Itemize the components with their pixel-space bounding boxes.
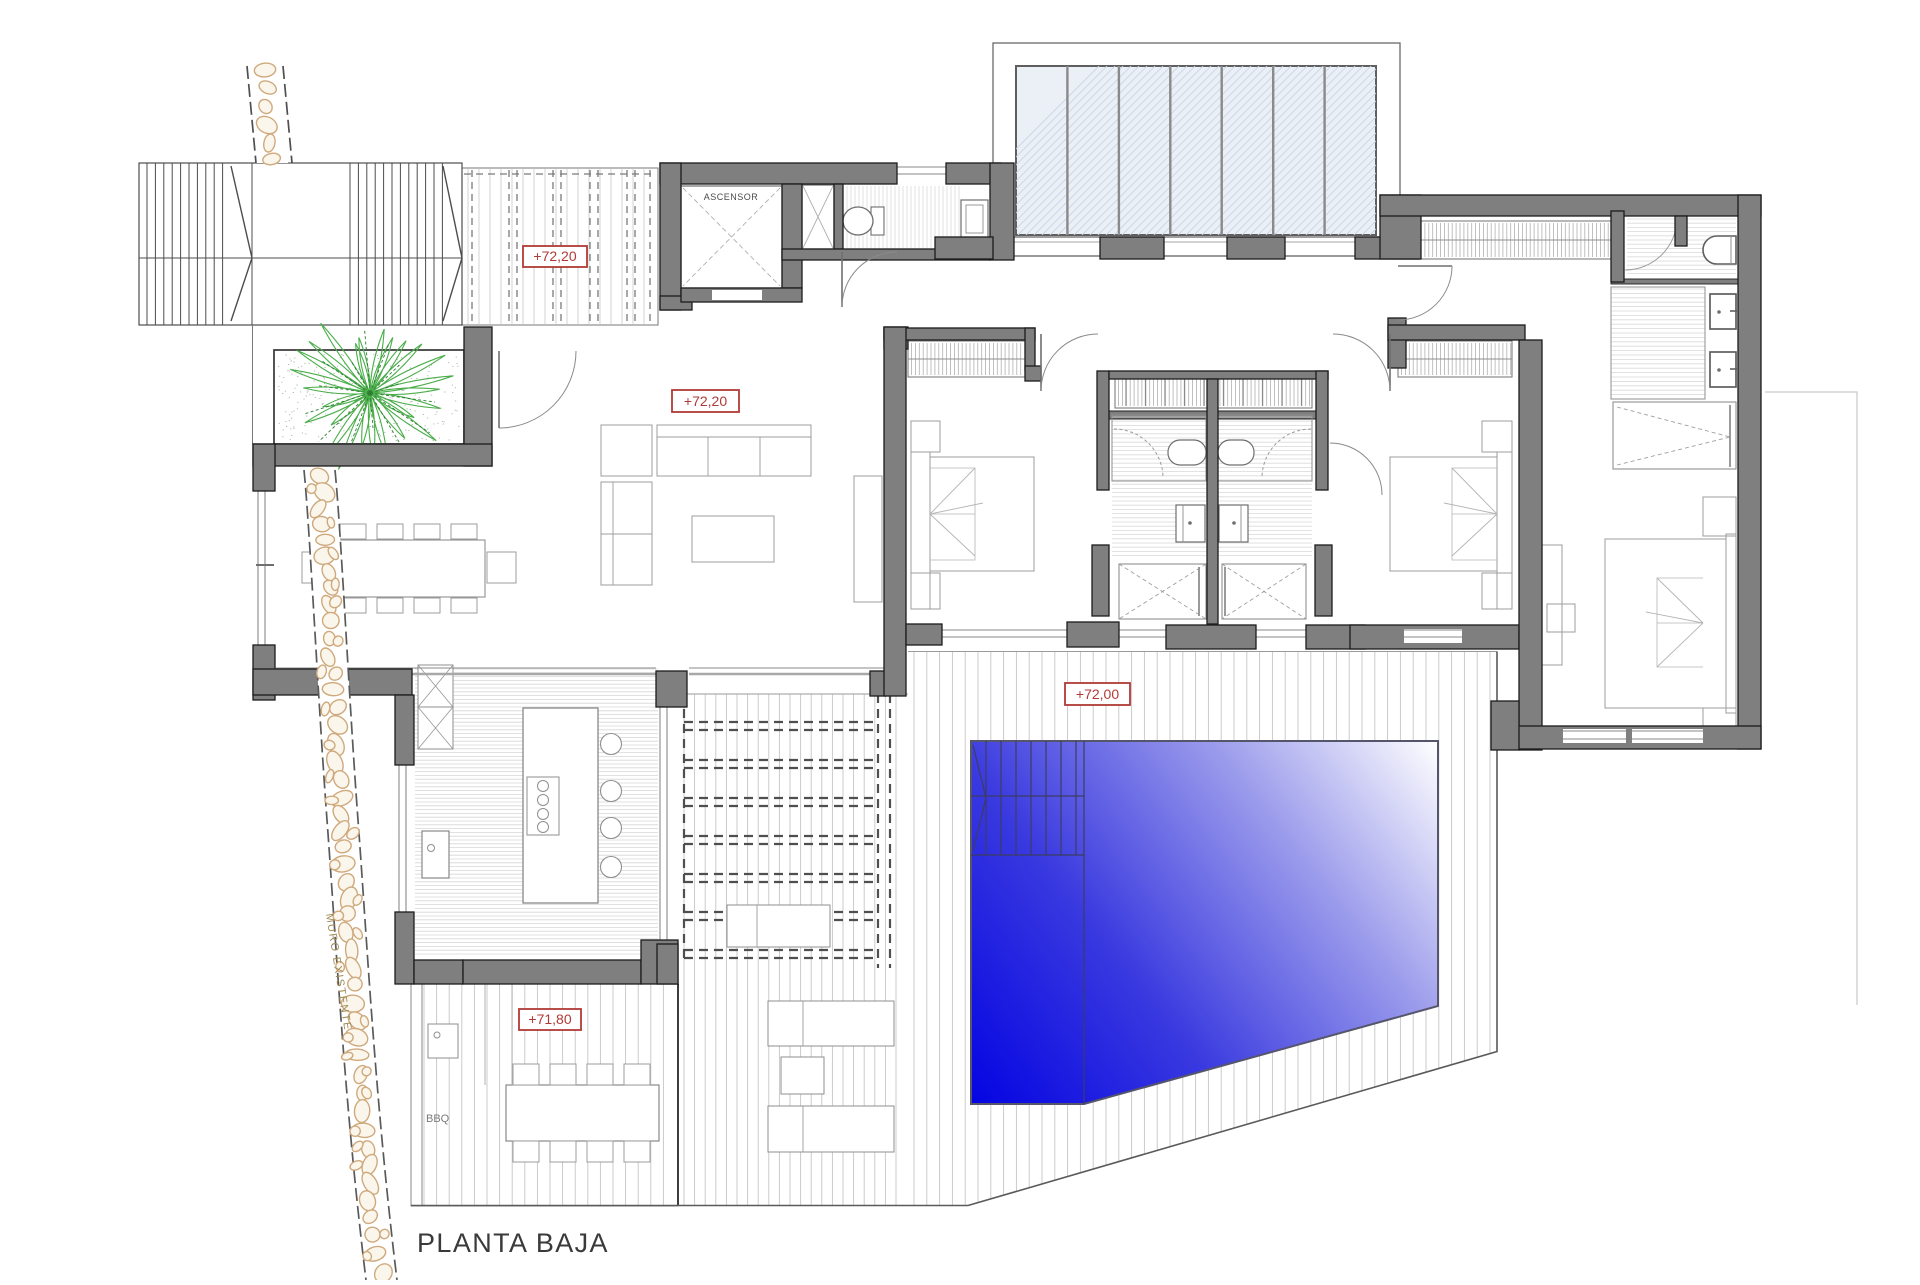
- svg-text:BBQ: BBQ: [426, 1113, 450, 1125]
- svg-text:+72,20: +72,20: [533, 248, 576, 264]
- svg-text:ASCENSOR: ASCENSOR: [704, 192, 759, 202]
- svg-text:+72,00: +72,00: [1076, 686, 1119, 702]
- svg-text:PLANTA BAJA: PLANTA BAJA: [417, 1228, 609, 1258]
- svg-text:+71,80: +71,80: [528, 1011, 571, 1027]
- svg-text:+72,20: +72,20: [684, 393, 727, 409]
